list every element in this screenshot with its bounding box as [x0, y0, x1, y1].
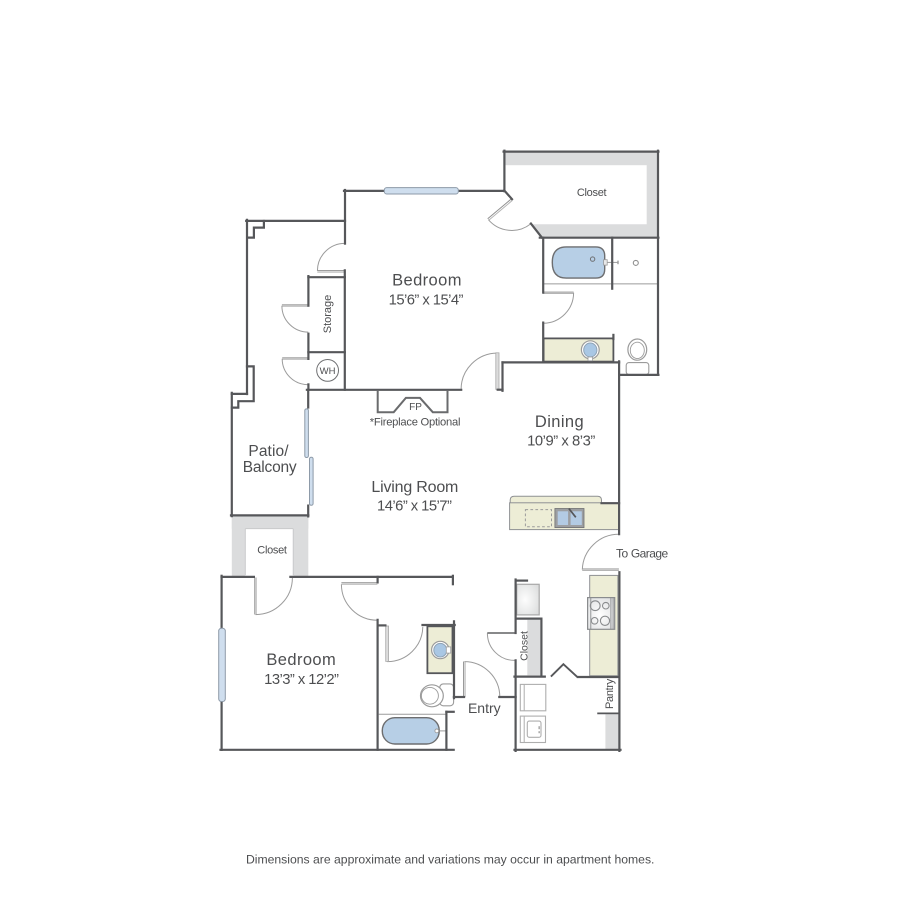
svg-text:Balcony: Balcony [243, 459, 297, 476]
svg-text:10’9” x 8’3”: 10’9” x 8’3” [527, 434, 595, 450]
svg-text:WH: WH [320, 366, 336, 377]
svg-text:13’3” x 12’2”: 13’3” x 12’2” [264, 672, 339, 688]
svg-text:To Garage: To Garage [616, 547, 668, 561]
svg-text:Living Room: Living Room [371, 479, 458, 496]
svg-text:Pantry: Pantry [604, 678, 616, 709]
svg-text:Entry: Entry [468, 700, 501, 716]
svg-text:Dining: Dining [535, 413, 584, 431]
svg-text:15’6” x 15’4”: 15’6” x 15’4” [389, 292, 464, 308]
svg-text:Dimensions are approximate and: Dimensions are approximate and variation… [246, 852, 654, 866]
svg-text:Patio/: Patio/ [248, 443, 289, 460]
svg-text:Bedroom: Bedroom [392, 272, 462, 290]
svg-text:Closet: Closet [257, 544, 287, 556]
svg-text:Bedroom: Bedroom [266, 651, 336, 669]
svg-text:FP: FP [409, 402, 422, 413]
svg-text:*Fireplace Optional: *Fireplace Optional [370, 416, 460, 428]
svg-text:Storage: Storage [322, 295, 334, 334]
svg-text:Closet: Closet [518, 631, 530, 661]
svg-text:Closet: Closet [577, 187, 607, 199]
svg-text:14’6” x 15’7”: 14’6” x 15’7” [377, 499, 452, 515]
